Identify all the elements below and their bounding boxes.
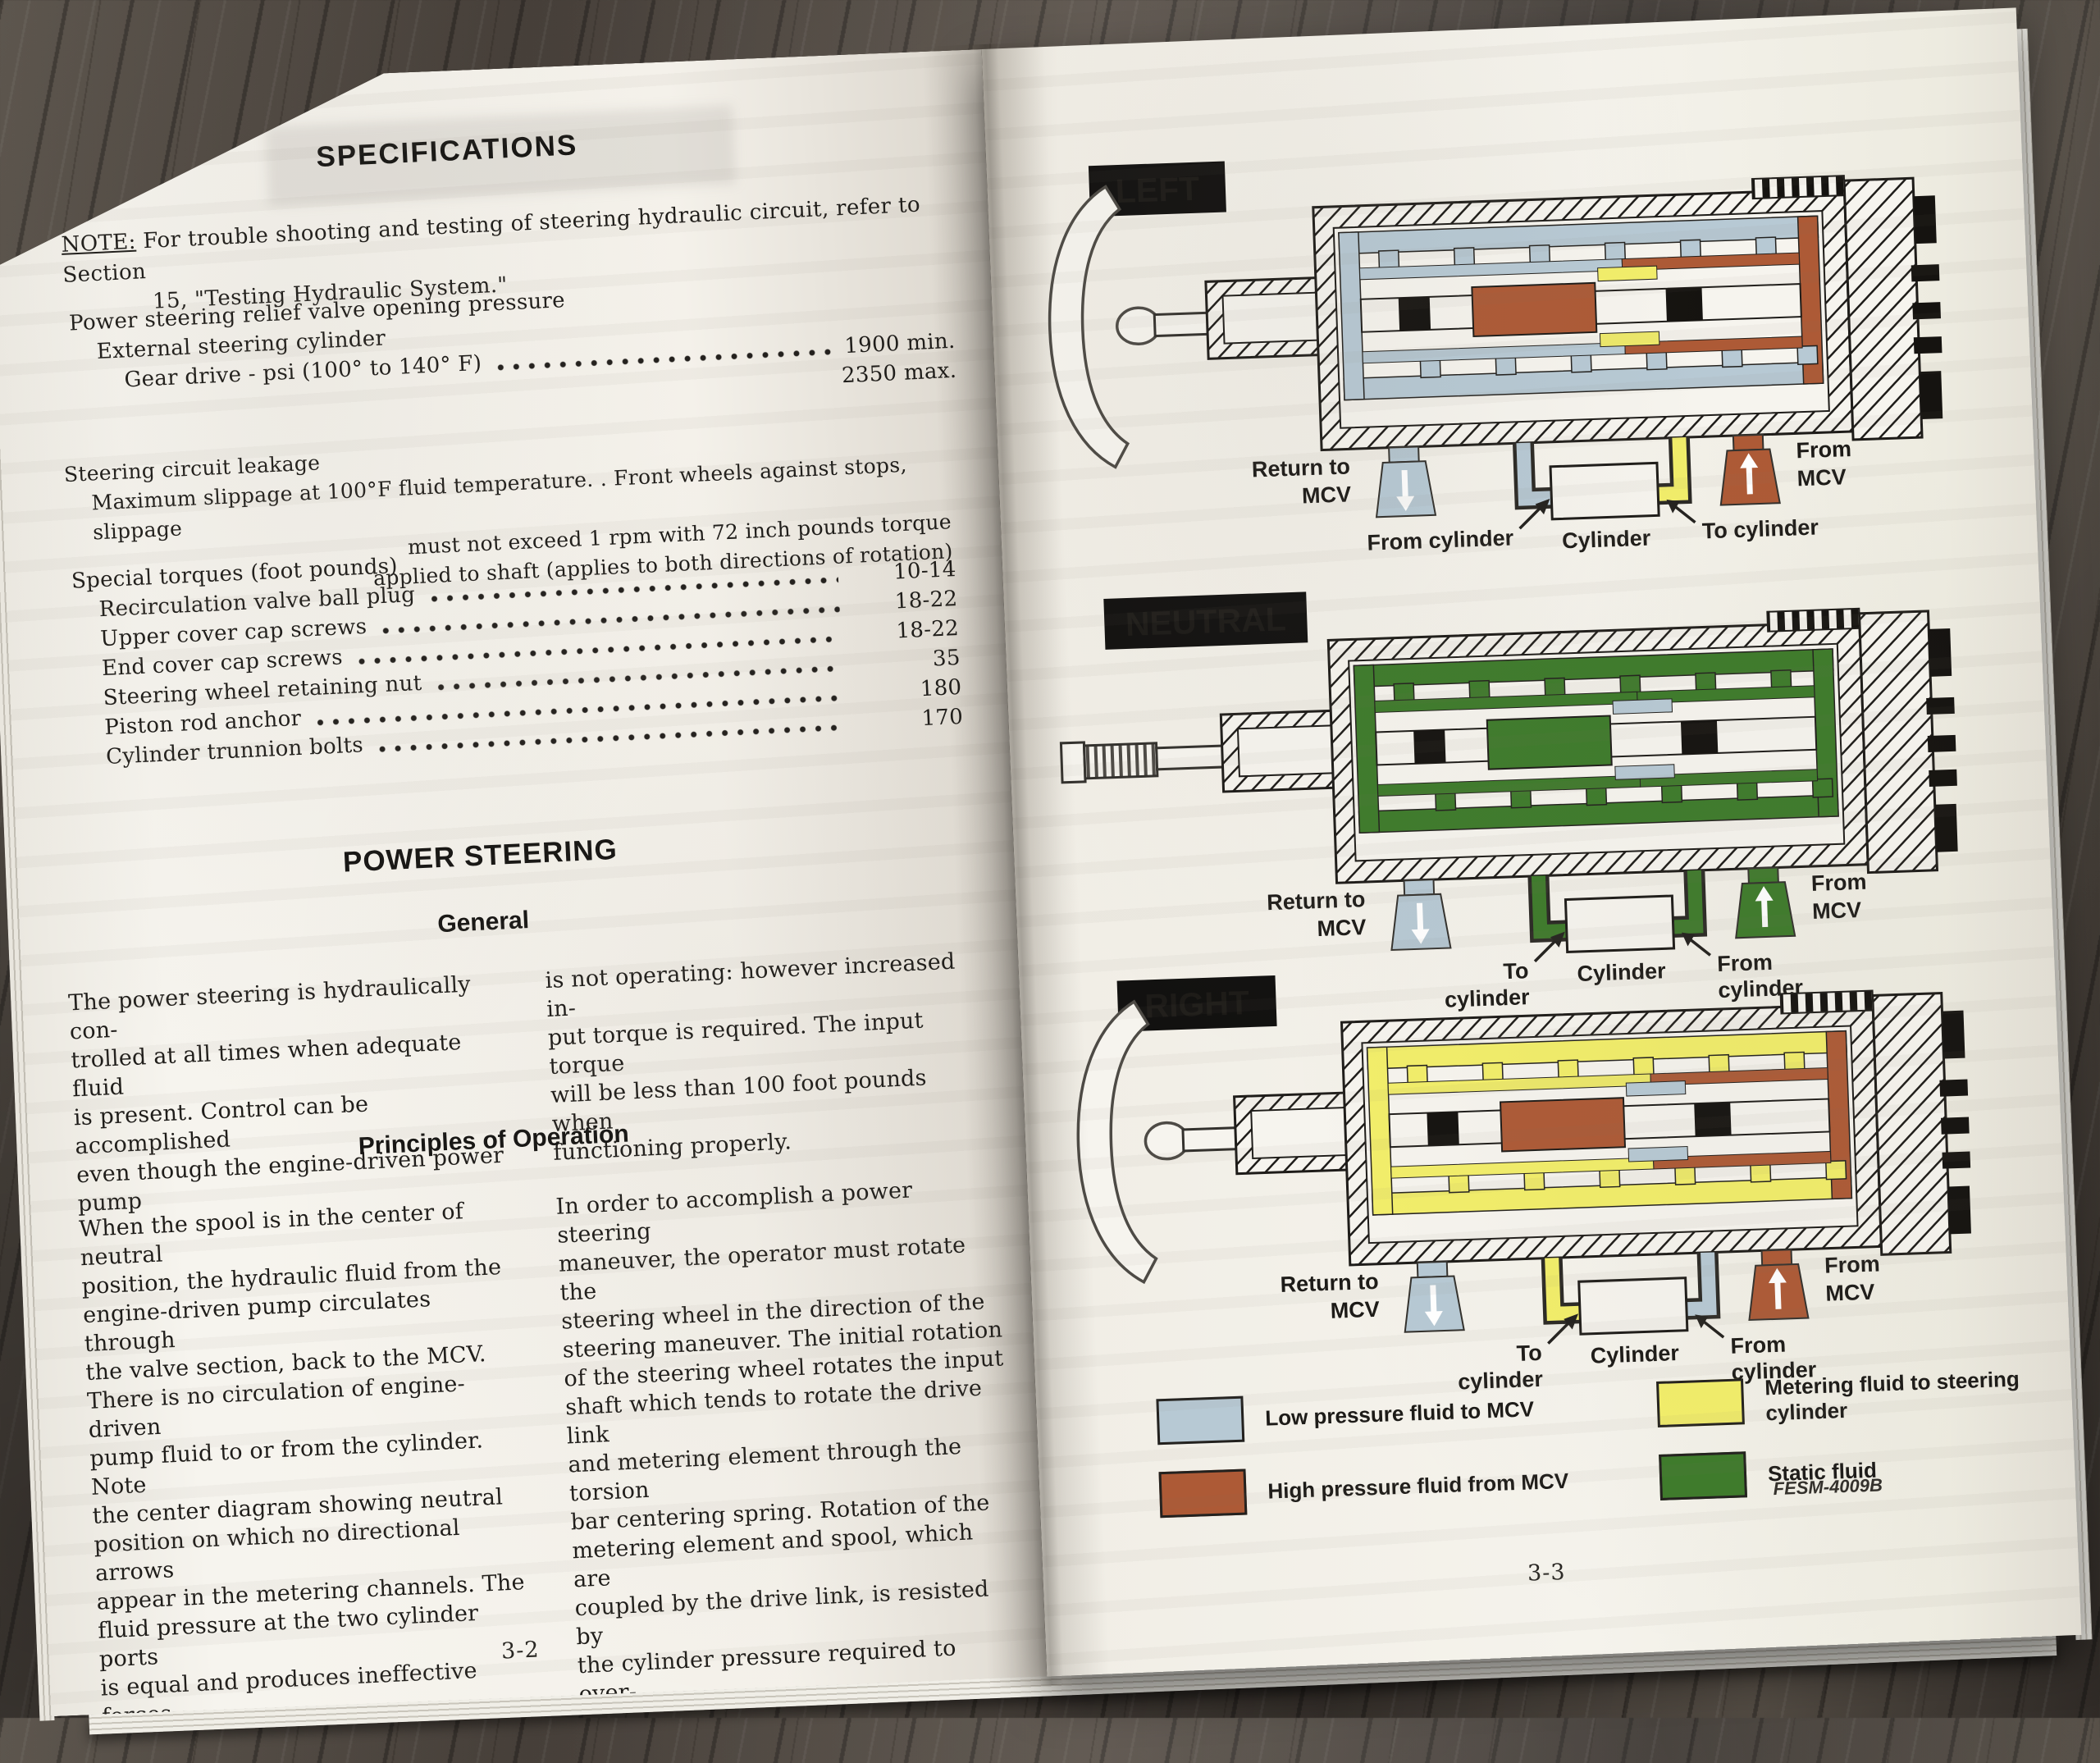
legend-label: Low pressure fluid to MCV	[1265, 1396, 1535, 1431]
right-page: LEFT	[982, 7, 2082, 1676]
svg-text:NEUTRAL: NEUTRAL	[1125, 600, 1286, 643]
cylinder-box	[1550, 463, 1659, 518]
cylinder-pipes	[1523, 437, 1682, 520]
legend-color-swatch	[1156, 1396, 1244, 1446]
diagram-svg-right: RIGHT	[1036, 940, 2027, 1421]
supply-port-spout	[1733, 867, 1795, 938]
cylinder-box	[1565, 896, 1673, 952]
legend-color-swatch	[1656, 1378, 1745, 1427]
legend-label: High pressure fluid from MCV	[1267, 1468, 1569, 1504]
principles-text-columns: When the spool is in the center of neutr…	[78, 1172, 1020, 1761]
legend-item: High pressure fluid from MCV	[1158, 1455, 1660, 1518]
diagram-left-turn: LEFT	[1008, 125, 1999, 605]
port-left-label: Return toMCV	[1280, 1269, 1380, 1325]
torque-value: 18-22	[852, 584, 959, 619]
general-column-2: is not operating: however increased in- …	[545, 946, 996, 1196]
general-column-1: The power steering is hydraulically con-…	[67, 968, 518, 1218]
general-heading: General	[65, 889, 902, 957]
port-right-label: FromMCV	[1796, 436, 1853, 491]
return-port-spout	[1390, 879, 1451, 950]
return-port-spout	[1374, 446, 1436, 517]
torque-value: 18-22	[853, 614, 960, 648]
torque-value: 180	[856, 673, 963, 707]
steering-wheel-icon	[1074, 998, 1244, 1285]
port-left-label: Return toMCV	[1267, 887, 1367, 943]
port-right-label: FromMCV	[1810, 870, 1868, 924]
dot-leader	[377, 722, 846, 756]
return-port-spout	[1403, 1261, 1464, 1331]
legend-color-swatch	[1158, 1469, 1247, 1519]
principles-column-1: When the spool is in the center of neutr…	[78, 1194, 544, 1761]
port-left-label: Return toMCV	[1251, 454, 1351, 509]
diagram-right-turn: RIGHT	[1036, 940, 2027, 1421]
general-text-columns: The power steering is hydraulically con-…	[67, 946, 995, 1218]
port-right-label: FromMCV	[1824, 1251, 1882, 1305]
note-label: NOTE:	[61, 230, 136, 258]
diagram-title-box: NEUTRAL	[1103, 591, 1308, 650]
principles-column-2: In order to accomplish a power steering …	[555, 1172, 1021, 1738]
pipe-left-label: From cylinder	[1367, 525, 1514, 555]
supply-port-spout	[1719, 434, 1780, 505]
special-torques-spec: Special torques (foot pounds) Recirculat…	[71, 525, 964, 774]
torque-value: 170	[857, 702, 964, 737]
torque-value: 10-14	[851, 555, 957, 589]
cylinder-pipes	[1538, 870, 1696, 953]
left-page: SPECIFICATIONS NOTE: For trouble shootin…	[0, 49, 1047, 1716]
cylinder-box	[1579, 1278, 1687, 1334]
open-service-manual: SPECIFICATIONS NOTE: For trouble shootin…	[0, 7, 2094, 1738]
svg-text:LEFT: LEFT	[1115, 170, 1200, 211]
torque-value: 35	[855, 643, 961, 678]
svg-text:RIGHT: RIGHT	[1144, 984, 1250, 1025]
supply-port-spout	[1747, 1249, 1809, 1320]
cylinder-label: Cylinder	[1590, 1341, 1679, 1368]
pipe-right-label: To cylinder	[1701, 514, 1819, 543]
diagram-svg-left: LEFT	[1008, 125, 1999, 605]
legend-color-swatch	[1659, 1451, 1747, 1500]
cylinder-pipes	[1552, 1253, 1710, 1336]
figure-code: FESM-4009B	[1773, 1474, 1883, 1500]
photo-of-open-manual: { "left_page": { "title": "SPECIFICATION…	[0, 0, 2100, 1718]
power-steering-heading: POWER STEERING	[62, 820, 899, 893]
pressure-max-value: 2350 max.	[841, 356, 957, 391]
legend-label: Metering fluid to steering cylinder	[1764, 1366, 2043, 1427]
right-page-number: 3-3	[1527, 1560, 1567, 1587]
cylinder-label: Cylinder	[1562, 526, 1651, 554]
splined-input-shaft-icon	[1061, 738, 1226, 783]
steering-wheel-icon	[1045, 183, 1216, 469]
left-page-number: 3-2	[500, 1637, 540, 1664]
